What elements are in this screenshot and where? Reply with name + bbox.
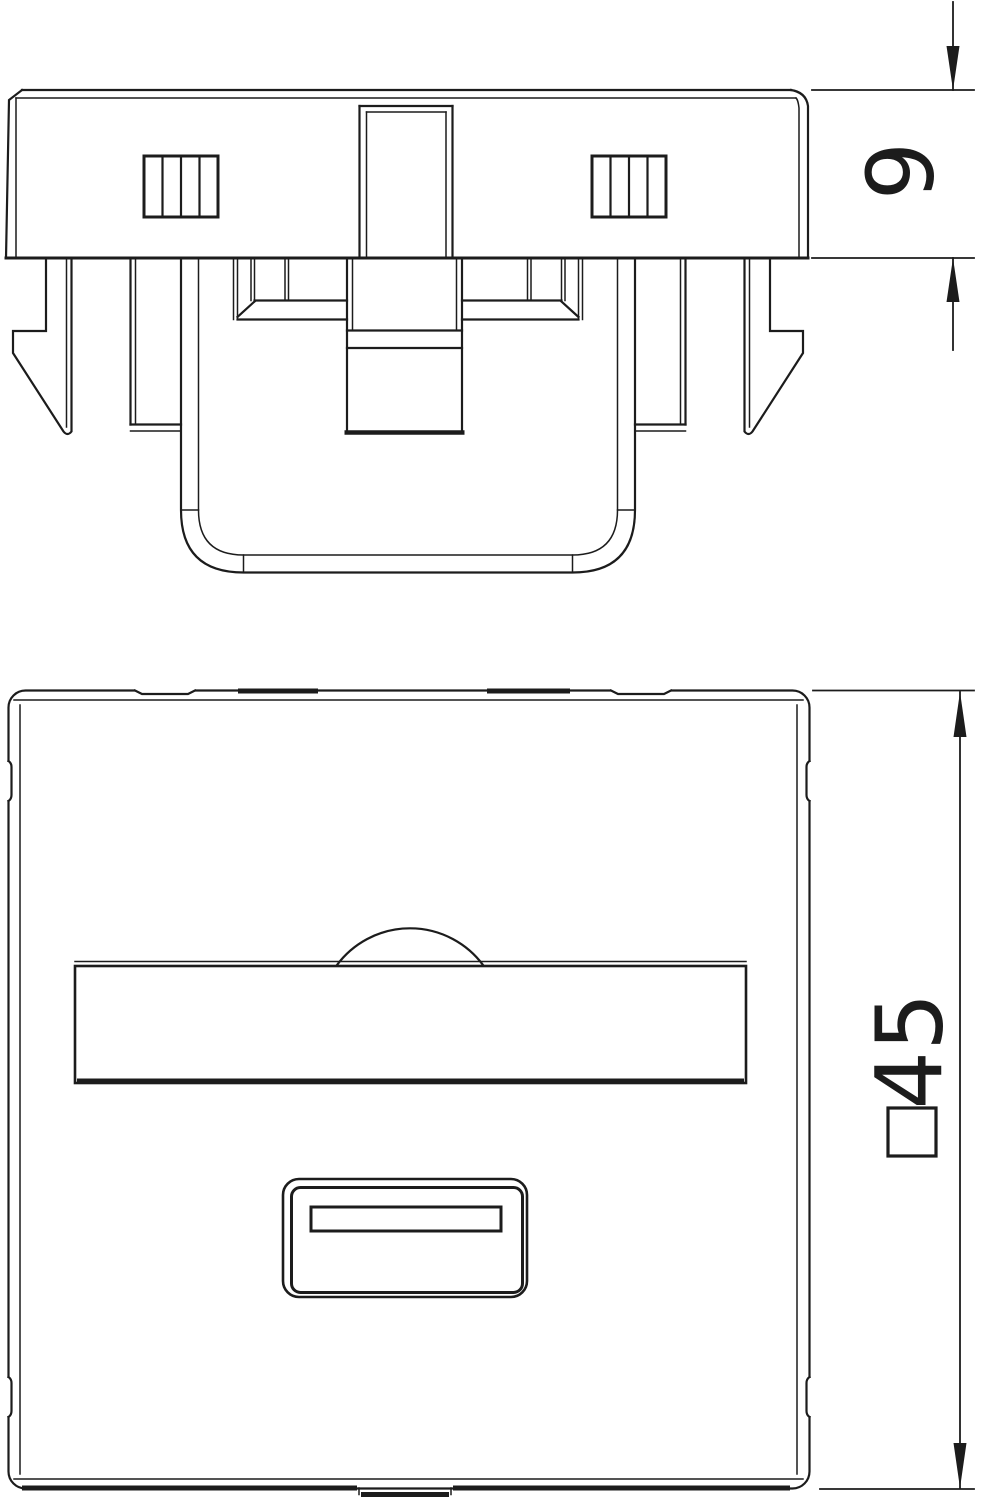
dimension-45-label: 45 xyxy=(857,992,964,1109)
right-guide-pocket xyxy=(462,259,583,320)
label-window xyxy=(75,928,746,1083)
right-grille xyxy=(592,156,666,217)
dimension-45: 45 xyxy=(813,691,974,1490)
left-support-leg xyxy=(131,259,182,431)
arrowhead-up-icon xyxy=(954,692,967,737)
central-latch-tab xyxy=(345,259,465,433)
finger-notch-arc xyxy=(337,928,483,965)
arrowhead-down-icon xyxy=(947,46,960,90)
right-support-leg xyxy=(635,259,686,431)
center-post xyxy=(360,106,453,258)
clip-assembly xyxy=(13,259,803,573)
arrowhead-down-icon xyxy=(954,1443,967,1488)
plate-outline xyxy=(9,691,810,1489)
square-symbol xyxy=(888,1108,936,1156)
left-guide-pocket xyxy=(234,259,348,320)
side-edge-notches xyxy=(5,761,813,1417)
left-barb-hook xyxy=(13,259,72,434)
right-barb-hook xyxy=(745,259,804,434)
usb-tongue xyxy=(311,1207,501,1231)
arrowhead-up-icon xyxy=(947,258,960,302)
technical-drawing-page: 9 xyxy=(0,0,983,1500)
dimension-9: 9 xyxy=(812,2,974,350)
top-view-side-profile: 9 xyxy=(6,2,974,573)
module-body xyxy=(6,90,808,258)
dimension-drawing: 9 xyxy=(0,0,983,1500)
dimension-9-label: 9 xyxy=(848,142,955,201)
usb-port xyxy=(283,1179,527,1297)
left-grille xyxy=(144,156,218,217)
usb-inner-frame xyxy=(292,1188,523,1293)
usb-outer-frame xyxy=(283,1179,527,1297)
front-view-cover-plate: 45 xyxy=(5,686,974,1495)
